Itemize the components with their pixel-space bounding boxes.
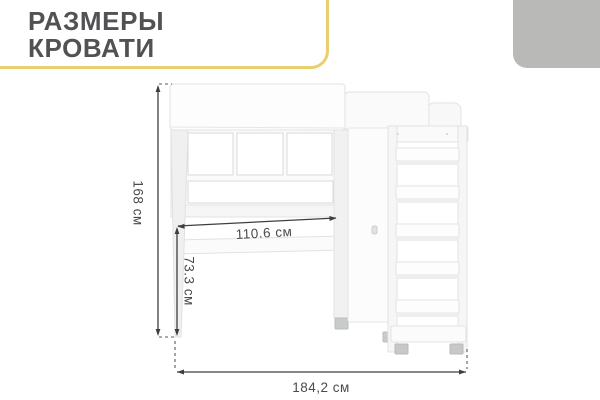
bed-dimension-diagram: 168 см 110.6 см 73.3 см 184,2 см [0,0,600,400]
guard-rail-panel [170,84,345,130]
arrowhead-left [177,370,184,375]
dim-total-width-label: 184,2 см [292,380,350,395]
dim-desk-height-label: 73.3 см [182,256,197,306]
desk-side-panel [171,130,188,337]
arrowhead-up [156,85,161,92]
ladder-bottom-shelf [391,326,466,342]
rail-opening-1 [188,133,233,175]
wardrobe-handle [372,226,377,234]
wardrobe-foot-left [335,318,348,329]
rail-opening-3 [287,133,332,175]
wardrobe-door [348,128,389,322]
rail-opening-2 [237,133,283,175]
ladder-foot-right [450,344,463,354]
ladder-top-panel [388,126,468,142]
shelf-opening [188,181,333,203]
dim-desk-width-label: 110.6 см [235,224,292,242]
screw-dot [446,133,448,135]
dimension-desk-width-line [178,218,336,226]
head-panel-mid [344,92,429,130]
page-root: РАЗМЕРЫ КРОВАТИ [0,0,600,400]
arrowhead-down [156,329,161,336]
ladder-foot-left [395,344,408,354]
arrowhead-right [459,370,466,375]
dim-height-label: 168 см [131,180,146,225]
wardrobe-side-panel [334,130,348,318]
hutch-top-band [171,205,344,217]
ladder-rungs [396,148,459,317]
